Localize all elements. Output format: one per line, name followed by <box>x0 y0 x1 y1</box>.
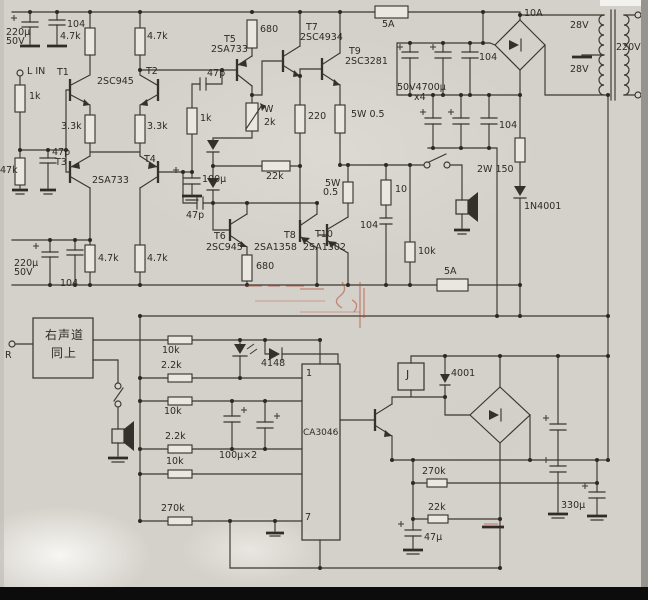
switch-top <box>424 154 450 168</box>
label-c47u: 47µ <box>424 533 442 543</box>
red-watermark <box>246 282 498 524</box>
label-r47k: 47k <box>0 166 18 176</box>
diodes <box>207 140 526 385</box>
capacitors <box>11 15 605 536</box>
label-r680-a: 680 <box>260 25 278 35</box>
label-t4: T4 <box>144 155 156 165</box>
label-lr-270k: 270k <box>161 504 185 514</box>
label-4001: 4001 <box>451 369 475 379</box>
input-terminal-right <box>9 341 15 347</box>
ground-symbols <box>12 46 607 554</box>
label-pot-2k: 2k <box>264 118 276 128</box>
label-r2w150: 2W 150 <box>477 165 514 175</box>
label-r4k7-d: 4.7k <box>147 254 168 264</box>
label-t10: T10 <box>315 230 333 240</box>
label-50v-bot: 50V <box>14 268 33 278</box>
label-2sa733-b: 2SA733 <box>211 45 248 55</box>
label-r220: 220 <box>308 112 326 122</box>
label-r3k3-b: 3.3k <box>147 122 168 132</box>
bridge-rectifier-top <box>495 20 545 70</box>
label-t8: T8 <box>284 231 296 241</box>
label-c104-top: 104 <box>67 20 85 30</box>
wiring <box>12 12 635 568</box>
label-pot-w: W <box>264 105 273 115</box>
label-r270k-b: 270k <box>422 467 446 477</box>
label-4148: 4148 <box>261 359 285 369</box>
label-r1k-in: 1k <box>29 92 41 102</box>
label-c104-z: 104 <box>360 221 378 231</box>
schematic-scan: L IN 1k 220µ 50V 104 4.7k 4.7k T1 T2 2SC… <box>0 0 648 600</box>
label-lr-10k-3: 10k <box>166 457 184 467</box>
label-c47p-in: 47p <box>52 148 70 158</box>
label-t1: T1 <box>57 68 69 78</box>
label-c104-bot: 104 <box>60 279 78 289</box>
label-2sc945: 2SC945 <box>97 77 134 87</box>
label-ic-pin7: 7 <box>305 513 311 523</box>
bridge-rectifier-bottom <box>470 387 530 443</box>
label-c47p-a: 47p <box>207 69 225 79</box>
label-r3k3-a: 3.3k <box>61 122 82 132</box>
label-ic-pin1: 1 <box>306 369 312 379</box>
relay-box <box>398 363 424 390</box>
label-c4700-qty: x4 <box>414 93 426 103</box>
label-c330u: 330µ <box>561 501 585 511</box>
mains-terminal-bottom <box>635 92 641 98</box>
label-c47p-b: 47p <box>186 211 204 221</box>
mains-terminal-top <box>635 12 641 18</box>
label-input-left: L IN <box>27 67 45 77</box>
switch-bottom <box>114 383 123 407</box>
label-1n4001: 1N4001 <box>524 202 561 212</box>
label-2sa1358: 2SA1358 <box>254 243 297 253</box>
speaker-bottom <box>112 421 134 451</box>
label-lr-10k-2: 10k <box>164 407 182 417</box>
label-right-channel-1: 右声道 <box>45 329 84 342</box>
label-r10k-sp: 10k <box>418 247 436 257</box>
label-t3: T3 <box>55 158 67 168</box>
fuse-5a-bottom <box>437 279 468 291</box>
label-input-right: R <box>5 351 12 361</box>
label-2sc945-b: 2SC945 <box>206 243 243 253</box>
transformer <box>599 10 641 100</box>
label-2sa733: 2SA733 <box>92 176 129 186</box>
speaker-top <box>456 192 478 222</box>
label-t6: T6 <box>214 232 226 242</box>
label-220v: 220V <box>616 43 641 53</box>
fuse-5a-top <box>375 6 408 18</box>
label-bridge-10a: 10A <box>524 9 543 19</box>
label-r22k-b: 22k <box>428 503 446 513</box>
label-r4k7-b: 4.7k <box>147 32 168 42</box>
label-r10: 10 <box>395 185 407 195</box>
label-lr-2k2-2: 2.2k <box>165 432 186 442</box>
label-relay-j: J <box>406 370 409 380</box>
label-28v-a: 28V <box>570 21 589 31</box>
label-lr-10k-1: 10k <box>162 346 180 356</box>
label-r5w-a: 5W 0.5 <box>351 110 385 120</box>
label-r680-b: 680 <box>256 262 274 272</box>
label-r4k7-a: 4.7k <box>60 32 81 42</box>
label-r22k: 22k <box>266 172 284 182</box>
label-right-channel-2: 同上 <box>51 347 77 360</box>
label-fuse-bot: 5A <box>444 267 457 277</box>
label-2sa1302: 2SA1302 <box>303 243 346 253</box>
label-c100u: 100µ <box>202 175 226 185</box>
label-t2: T2 <box>146 67 158 77</box>
label-r4k7-c: 4.7k <box>98 254 119 264</box>
label-100ux2: 100µ×2 <box>219 451 257 461</box>
label-c104-p1: 104 <box>479 53 497 63</box>
circuit-drawing <box>0 0 648 600</box>
label-28v-b: 28V <box>570 65 589 75</box>
scan-artifacts <box>0 0 648 600</box>
label-2sc4934: 2SC4934 <box>300 33 343 43</box>
label-ca3046: CA3046 <box>303 428 338 438</box>
label-lr-2k2-1: 2.2k <box>161 361 182 371</box>
label-c104-p2: 104 <box>499 121 517 131</box>
input-terminal-left <box>17 70 23 76</box>
label-fuse-top: 5A <box>382 20 395 30</box>
label-r1k-fb: 1k <box>200 114 212 124</box>
label-50v-top: 50V <box>6 37 25 47</box>
label-2sc3281: 2SC3281 <box>345 57 388 67</box>
label-r05-b: 0.5 <box>323 188 338 198</box>
led-arrows <box>247 344 257 354</box>
